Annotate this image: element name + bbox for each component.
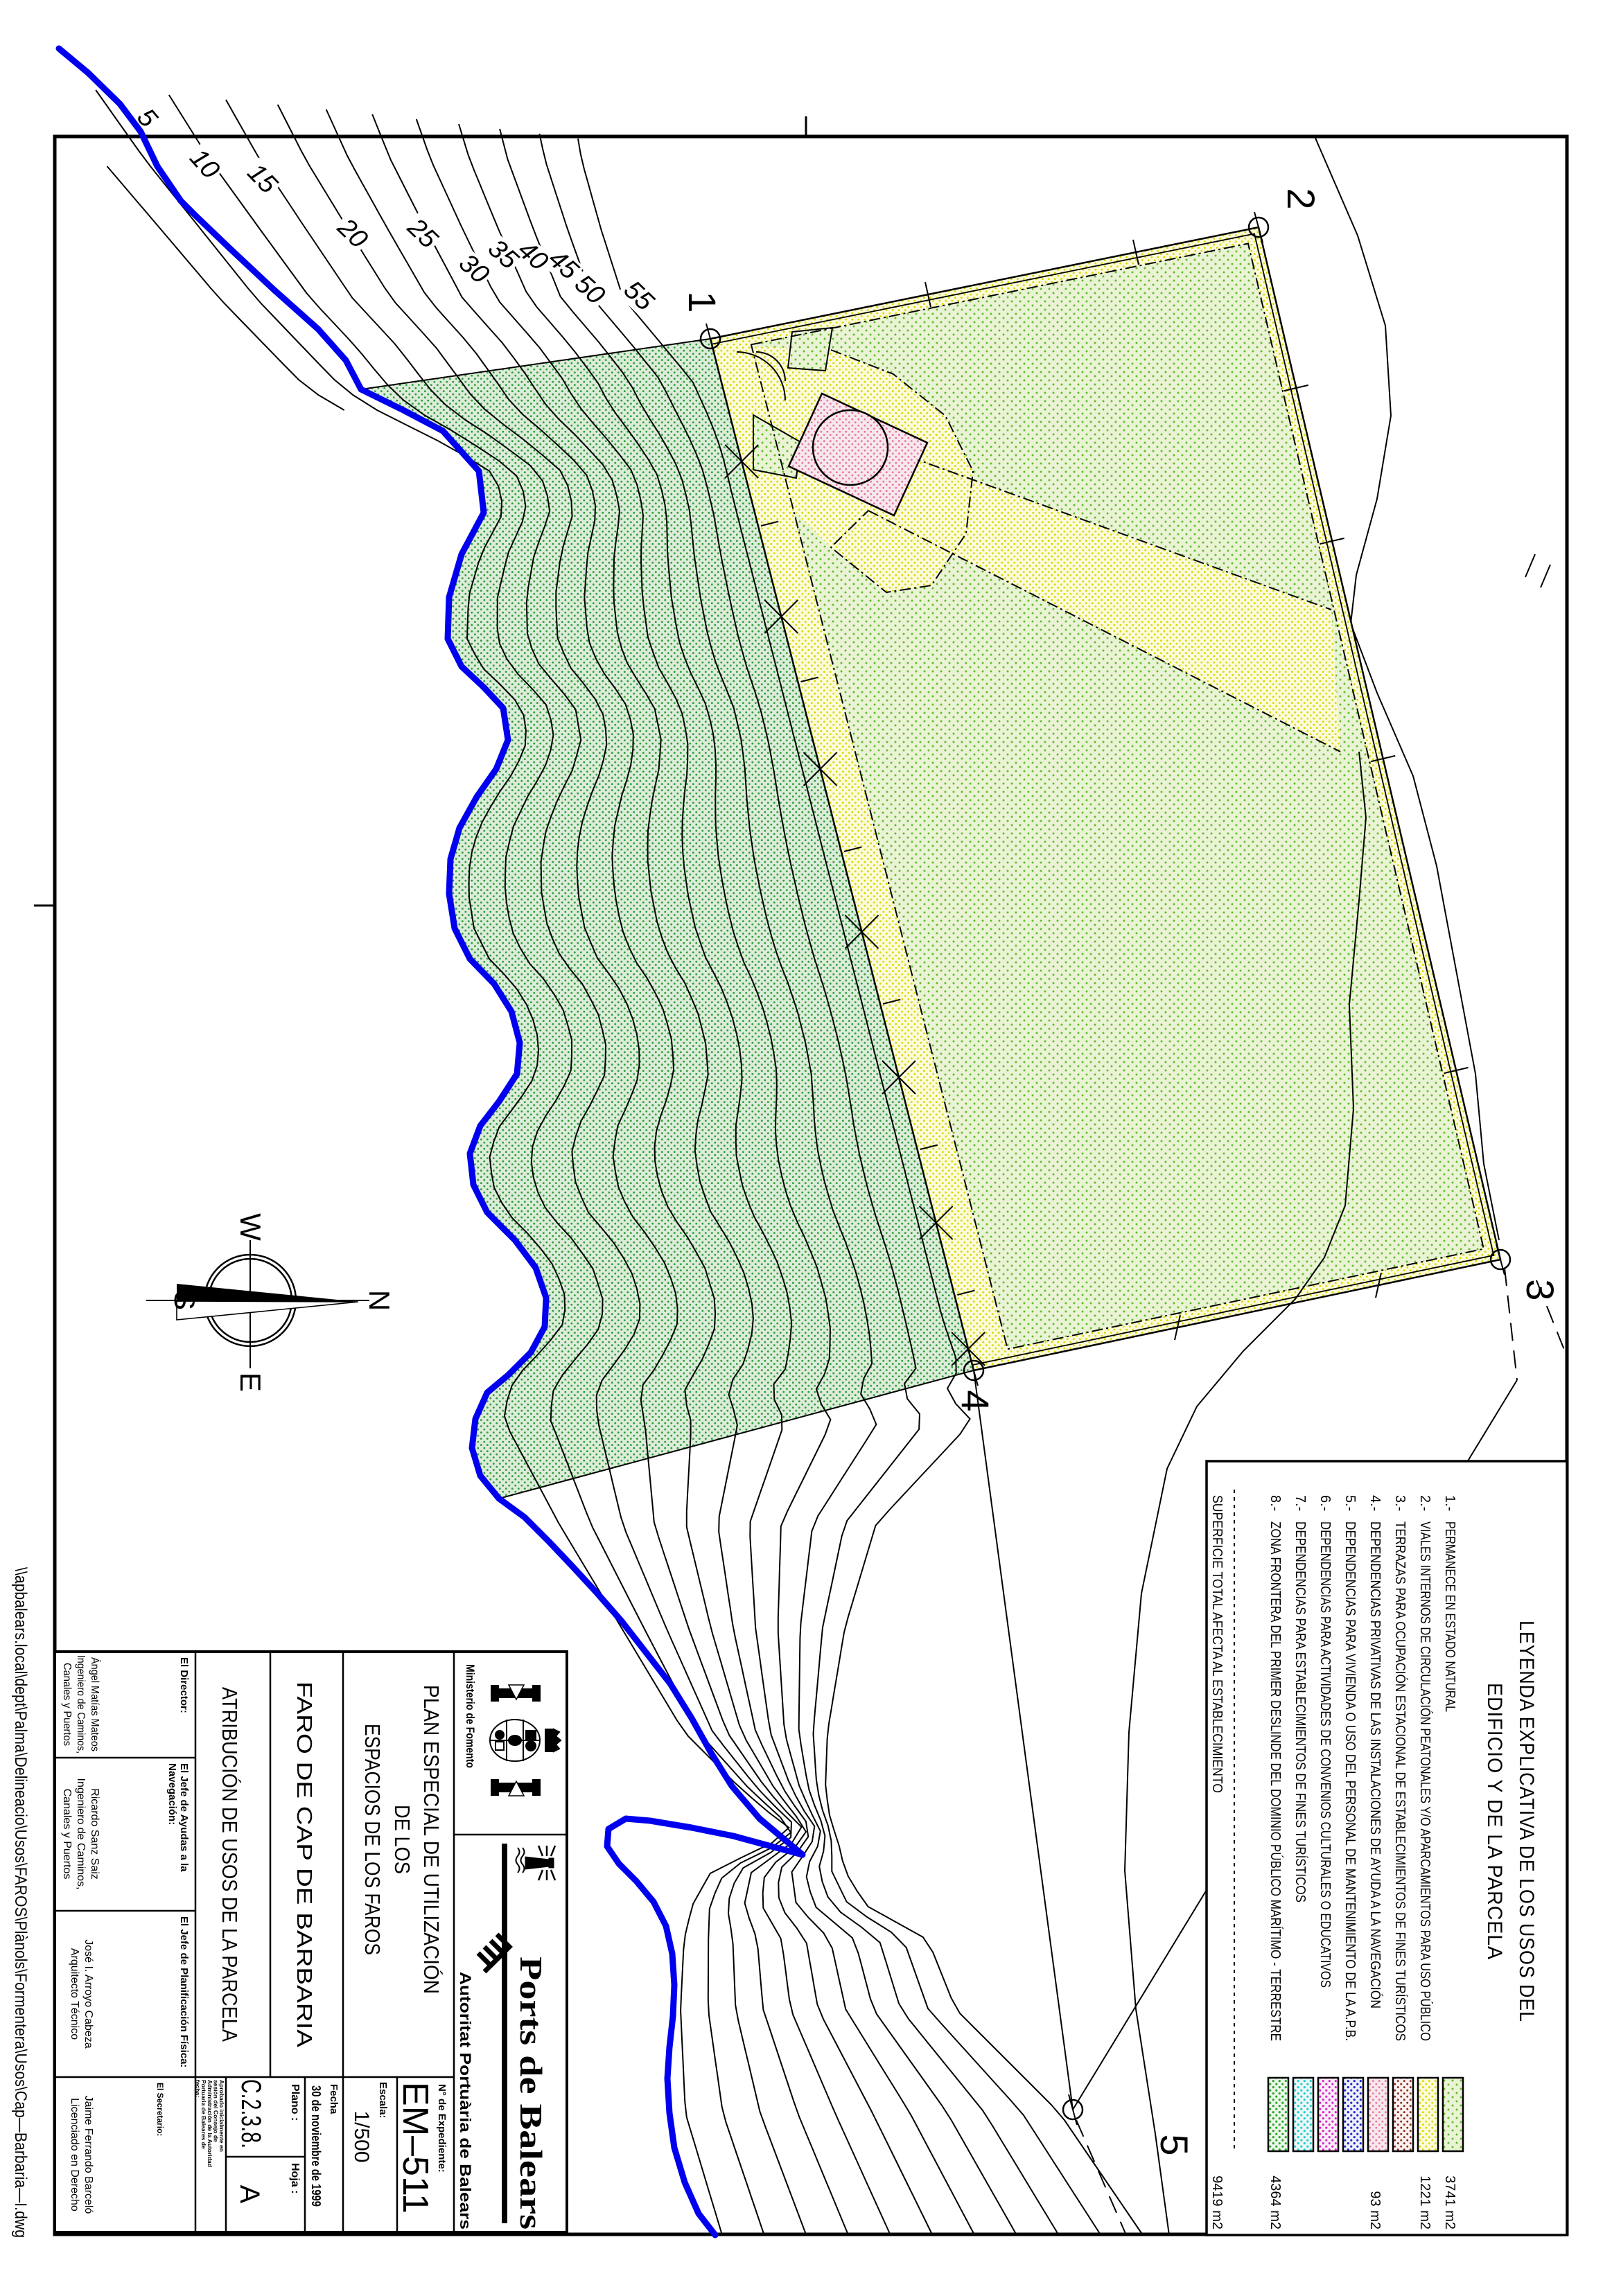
svg-text:3: 3 xyxy=(1518,1279,1562,1300)
svg-text:Ángel Matías Mateos: Ángel Matías Mateos xyxy=(89,1657,102,1751)
svg-text:7.-: 7.- xyxy=(1293,1495,1308,1511)
svg-text:5.-: 5.- xyxy=(1342,1495,1358,1511)
svg-text:8.-: 8.- xyxy=(1268,1495,1283,1511)
svg-text:ZONA FRONTERA DEL PRIMER DESLI: ZONA FRONTERA DEL PRIMER DESLINDE DEL DO… xyxy=(1268,1521,1283,2041)
svg-text:Ingeniero de Caminos,: Ingeniero de Caminos, xyxy=(75,1655,87,1754)
svg-text:1/500: 1/500 xyxy=(350,2110,373,2162)
svg-text:N° de Expediente:: N° de Expediente: xyxy=(436,2084,448,2173)
svg-text:El Jefe de Planificación Físic: El Jefe de Planificación Física: xyxy=(178,1916,190,2067)
svg-text:PERMANECE EN ESTADO NATURAL: PERMANECE EN ESTADO NATURAL xyxy=(1442,1521,1457,1712)
svg-text:fecha:: fecha: xyxy=(195,2080,202,2097)
svg-text:Escala:: Escala: xyxy=(377,2082,389,2119)
svg-text:VIALES INTERNOS DE CIRCULACIÓN: VIALES INTERNOS DE CIRCULACIÓN PEATONALE… xyxy=(1417,1521,1433,2041)
svg-text:El Director:: El Director: xyxy=(178,1657,190,1713)
svg-text:2.-: 2.- xyxy=(1417,1495,1432,1511)
svg-text:1: 1 xyxy=(681,291,724,312)
svg-text:E: E xyxy=(234,1372,267,1392)
svg-text:LEYENDA EXPLICATIVA DE LOS USO: LEYENDA EXPLICATIVA DE LOS USOS DEL xyxy=(1515,1621,1538,2022)
svg-text:Arquitecto Técnico: Arquitecto Técnico xyxy=(69,1948,80,2040)
svg-text:1221 m2: 1221 m2 xyxy=(1417,2175,1432,2229)
svg-text:El Secretario:: El Secretario: xyxy=(155,2083,165,2136)
svg-text:\\apbalears.local\dept\Palma\D: \\apbalears.local\dept\Palma\Delineacio\… xyxy=(11,1567,30,2238)
svg-text:DEPENDENCIAS PARA ACTIVIDADES: DEPENDENCIAS PARA ACTIVIDADES DE CONVENI… xyxy=(1317,1521,1333,1988)
svg-text:Ministerio de Fomento: Ministerio de Fomento xyxy=(464,1664,477,1768)
svg-text:1.-: 1.- xyxy=(1442,1495,1457,1511)
svg-text:Plano :: Plano : xyxy=(289,2084,301,2121)
svg-text:DEPENDENCIAS PARA VIVIENDA O U: DEPENDENCIAS PARA VIVIENDA O USO DEL PER… xyxy=(1342,1521,1358,2041)
svg-text:3741 m2: 3741 m2 xyxy=(1442,2175,1457,2229)
svg-text:Autoritat Portuària de Balears: Autoritat Portuària de Balears xyxy=(457,1972,474,2229)
svg-text:5: 5 xyxy=(1153,2134,1196,2155)
svg-text:FARO DE CAP DE BARBARIA: FARO DE CAP DE BARBARIA xyxy=(292,1681,317,2047)
svg-text:4.-: 4.- xyxy=(1367,1495,1383,1511)
svg-text:A: A xyxy=(234,2185,265,2204)
svg-text:2: 2 xyxy=(1279,188,1323,209)
svg-text:Canales y Puertos: Canales y Puertos xyxy=(61,1789,73,1880)
svg-text:Licenciado en Derecho: Licenciado en Derecho xyxy=(69,2098,80,2211)
svg-text:9419 m2: 9419 m2 xyxy=(1209,2175,1225,2229)
svg-text:DEPENDENCIAS PRIVATIVAS DE LAS: DEPENDENCIAS PRIVATIVAS DE LAS INSTALACI… xyxy=(1367,1521,1383,2008)
svg-text:SUPERFICIE TOTAL AFECTA AL EST: SUPERFICIE TOTAL AFECTA AL ESTABLECIMIEN… xyxy=(1209,1495,1225,1793)
svg-text:3.-: 3.- xyxy=(1392,1495,1408,1511)
svg-text:W: W xyxy=(234,1213,267,1241)
svg-text:EDIFICIO Y DE LA PARCELA: EDIFICIO Y DE LA PARCELA xyxy=(1483,1683,1506,1960)
svg-text:Ricardo Sanz Saiz: Ricardo Sanz Saiz xyxy=(89,1788,100,1880)
svg-text:Fecha: Fecha xyxy=(328,2084,340,2114)
svg-text:30 de noviembre de 1999: 30 de noviembre de 1999 xyxy=(309,2085,323,2207)
svg-text:Hoja :: Hoja : xyxy=(289,2163,301,2193)
svg-text:S: S xyxy=(168,1291,201,1310)
svg-text:4: 4 xyxy=(954,1390,997,1411)
svg-text:Jaime Ferrando Barceló: Jaime Ferrando Barceló xyxy=(82,2096,94,2214)
svg-text:C.2.3.8.: C.2.3.8. xyxy=(236,2079,266,2148)
svg-text:DEPENDENCIAS PARA ESTABLECIMIE: DEPENDENCIAS PARA ESTABLECIMIENTOS DE FI… xyxy=(1293,1521,1308,1902)
svg-text:ESPACIOS DE LOS FAROS: ESPACIOS DE LOS FAROS xyxy=(360,1724,385,1955)
svg-text:DE LOS: DE LOS xyxy=(390,1805,414,1874)
svg-text:ATRIBUCIÓN DE USOS DE LA PARCE: ATRIBUCIÓN DE USOS DE LA PARCELA xyxy=(218,1687,242,2042)
svg-text:4364 m2: 4364 m2 xyxy=(1268,2175,1283,2229)
svg-text:El Jefe de Ayudas a la: El Jefe de Ayudas a la xyxy=(178,1763,190,1872)
svg-text:6.-: 6.- xyxy=(1317,1495,1333,1511)
svg-text:N: N xyxy=(363,1290,396,1311)
svg-text:Navegación:: Navegación: xyxy=(166,1763,178,1825)
svg-text:EM–511: EM–511 xyxy=(395,2082,435,2214)
svg-text:PLAN ESPECIAL DE UTILIZACIÓN: PLAN ESPECIAL DE UTILIZACIÓN xyxy=(419,1685,444,1994)
svg-text:Ingeniero de Caminos,: Ingeniero de Caminos, xyxy=(75,1778,87,1890)
svg-text:TERRAZAS PARA OCUPACIÓN ESTACI: TERRAZAS PARA OCUPACIÓN ESTACIONAL DE ES… xyxy=(1392,1521,1408,2041)
svg-text:Ports de Balears: Ports de Balears xyxy=(514,1957,549,2229)
svg-text:José I. Arroyo Cabeza: José I. Arroyo Cabeza xyxy=(82,1939,94,2049)
svg-text:93 m2: 93 m2 xyxy=(1367,2191,1383,2229)
svg-text:Canales y Puertos: Canales y Puertos xyxy=(61,1663,73,1746)
